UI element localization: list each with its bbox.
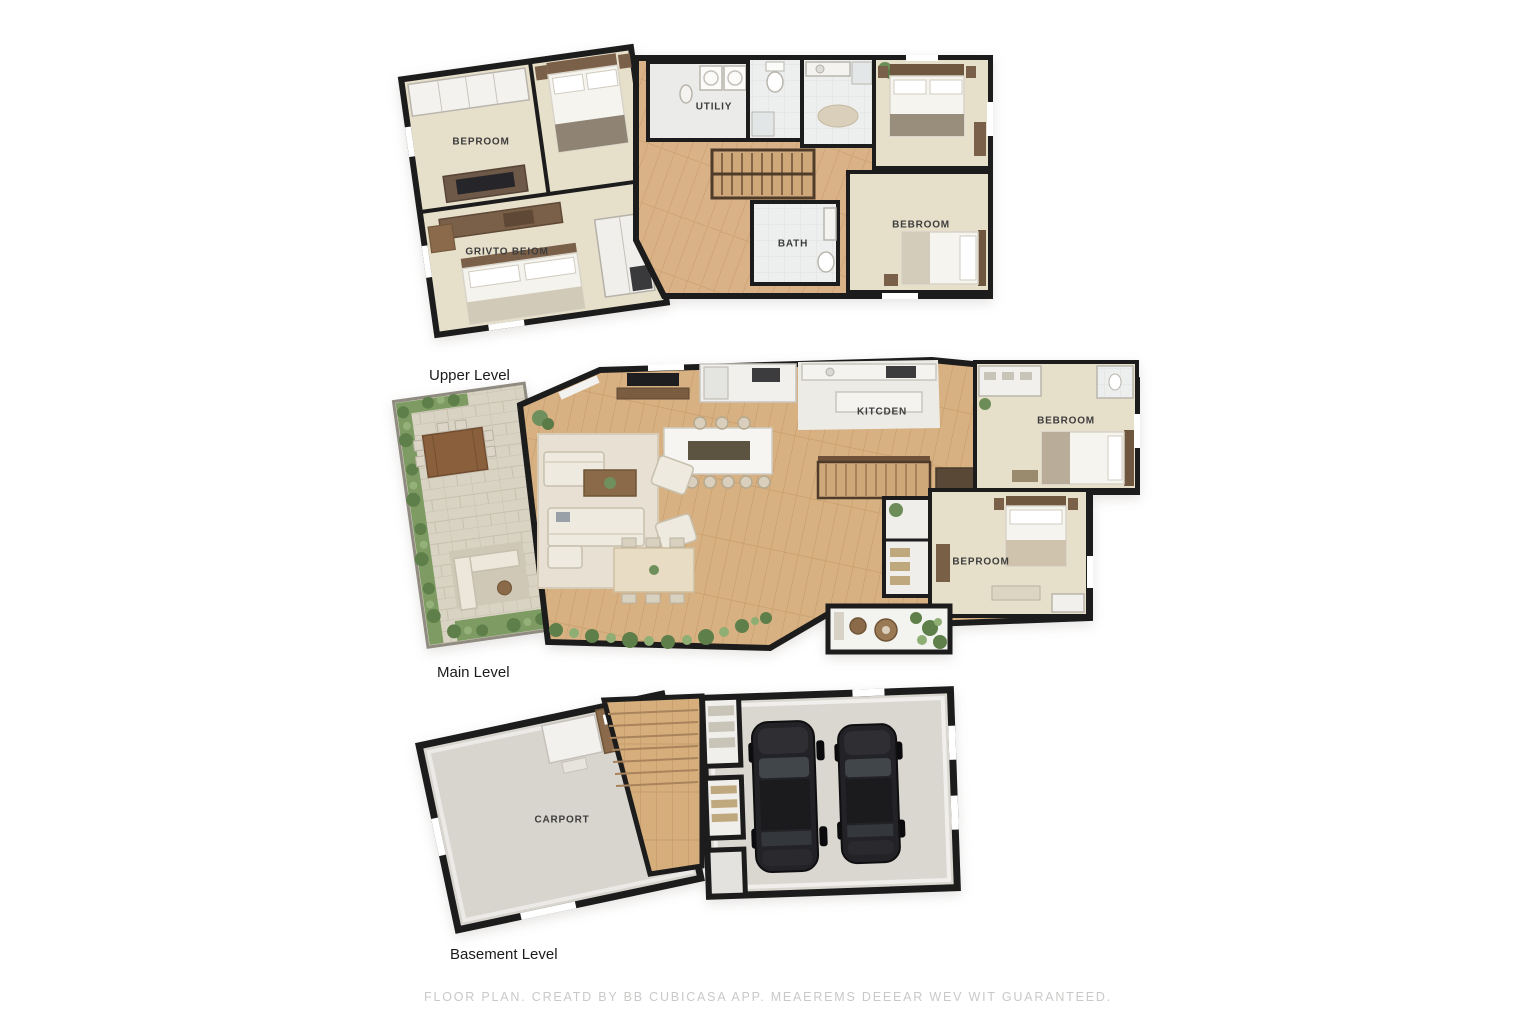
staircase xyxy=(818,456,930,498)
upper-right-wing xyxy=(636,58,990,296)
floor-plan-page: Upper Level Main Level Basement Level BE… xyxy=(0,0,1536,1024)
kitchen-area xyxy=(798,360,940,430)
staircase xyxy=(712,150,814,198)
main-level-title: Main Level xyxy=(437,664,510,681)
tv-console xyxy=(617,373,689,399)
room-label-basement-carport: CARPORT xyxy=(534,815,589,826)
bathroom xyxy=(748,58,802,140)
storage-closet xyxy=(703,697,741,766)
bedroom xyxy=(930,490,1088,616)
upper-level-plan xyxy=(401,47,990,335)
room-label-upper-bedroom-right: BEBROOM xyxy=(892,220,950,231)
bedroom xyxy=(874,58,990,170)
storage-closet xyxy=(705,777,743,838)
room-label-main-bedroom-upper: BEBROOM xyxy=(1037,416,1095,427)
storage-closet xyxy=(708,849,746,896)
room-label-upper-utility: UTILIY xyxy=(696,102,732,113)
car xyxy=(747,720,828,873)
room-label-main-kitchen: KITCDEN xyxy=(857,407,907,418)
main-floor xyxy=(520,360,1137,652)
room-label-upper-bedroom: BEPROOM xyxy=(452,137,509,148)
footer-disclaimer: FLOOR PLAN. CREATD BY BB CUBICASA APP. M… xyxy=(0,990,1536,1004)
hall-closet xyxy=(884,498,930,596)
balcony xyxy=(828,606,950,652)
basement-level-title: Basement Level xyxy=(450,946,558,963)
cabinet-row xyxy=(700,364,796,402)
room-label-upper-bath: BATH xyxy=(778,239,808,250)
upper-left-wing xyxy=(401,47,667,335)
floor-plan-canvas xyxy=(0,0,1536,1024)
garage xyxy=(703,690,958,897)
car xyxy=(834,723,907,863)
room-label-upper-primary-bedroom: GRIVTO BEIOM xyxy=(465,247,548,258)
upper-level-title: Upper Level xyxy=(429,367,510,384)
basement-level-plan xyxy=(419,690,957,930)
main-level-plan xyxy=(392,360,1137,652)
room-label-main-bedroom-lower: BEPROOM xyxy=(952,557,1009,568)
bedroom xyxy=(848,172,990,292)
bathroom xyxy=(802,58,874,146)
